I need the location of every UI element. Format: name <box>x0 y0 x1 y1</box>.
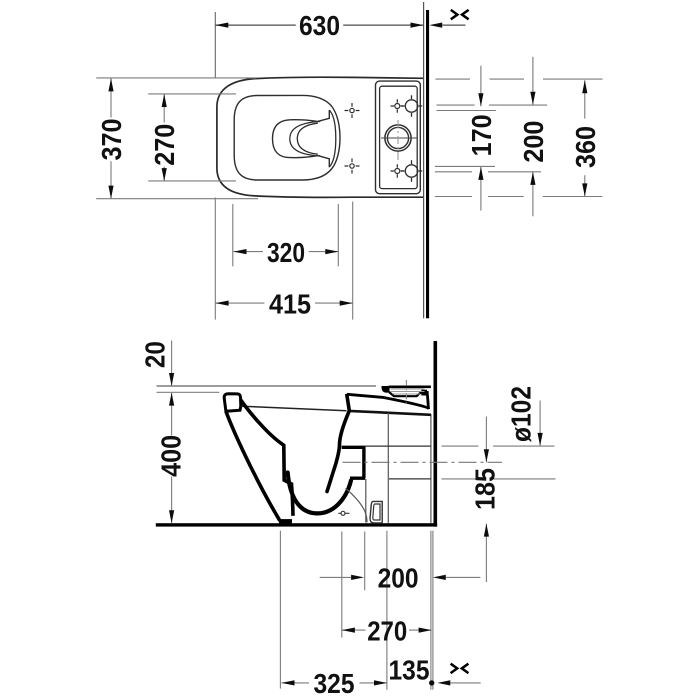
svg-text:270: 270 <box>149 124 180 166</box>
svg-text:360: 360 <box>570 126 601 168</box>
svg-text:170: 170 <box>466 114 497 156</box>
svg-text:200: 200 <box>378 563 419 594</box>
svg-text:270: 270 <box>367 615 407 646</box>
svg-text:630: 630 <box>299 10 340 41</box>
svg-text:325: 325 <box>314 668 355 699</box>
svg-text:20: 20 <box>140 341 171 368</box>
svg-text:ø102: ø102 <box>505 386 536 442</box>
svg-text:135: 135 <box>389 655 430 686</box>
svg-text:370: 370 <box>96 119 127 161</box>
svg-text:320: 320 <box>267 237 305 268</box>
svg-text:415: 415 <box>269 288 311 319</box>
svg-text:400: 400 <box>155 435 186 477</box>
svg-text:200: 200 <box>518 121 549 163</box>
svg-text:185: 185 <box>470 468 501 510</box>
